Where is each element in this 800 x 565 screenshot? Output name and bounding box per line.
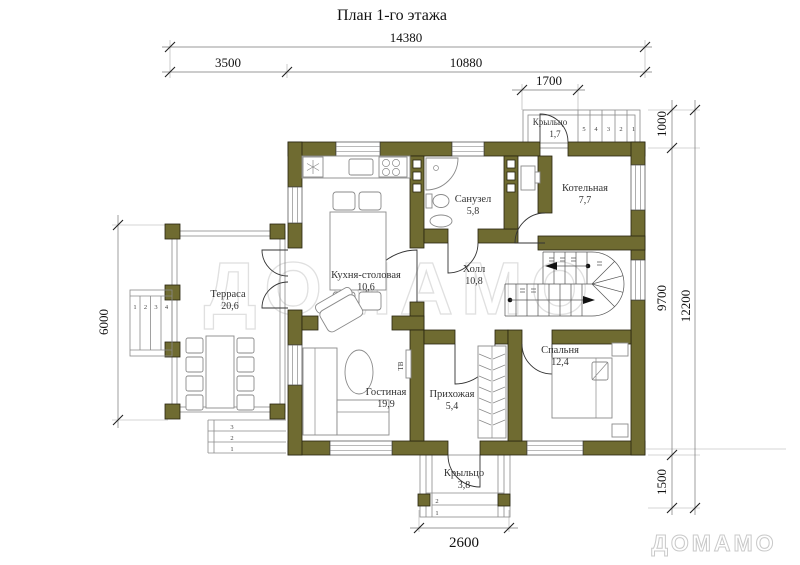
porch-bottom-label: Крыльцо (444, 468, 484, 479)
svg-text:2: 2 (230, 435, 233, 442)
svg-text:2: 2 (435, 498, 438, 505)
svg-text:4: 4 (594, 126, 598, 133)
bathroom-label: Санузел (455, 194, 492, 205)
hall-area: 10,8 (465, 276, 483, 287)
dim-right-house: 9700 (654, 285, 669, 311)
bedroom-label: Спальня (541, 345, 579, 356)
nightstand (612, 424, 628, 437)
toilet (433, 195, 449, 208)
svg-text:1: 1 (230, 446, 233, 453)
svg-text:5: 5 (582, 126, 585, 133)
terrace-dining-set (186, 336, 254, 410)
washbasin (430, 215, 452, 227)
shower (426, 158, 458, 190)
watermark-corner: ДОМАМО (651, 530, 776, 556)
entry-wardrobe (478, 346, 506, 438)
window (288, 187, 302, 223)
svg-text:1: 1 (435, 510, 438, 517)
tv-label: ТВ (397, 361, 405, 370)
window (330, 441, 392, 455)
hall-label: Холл (463, 264, 486, 275)
svg-text:3: 3 (154, 304, 157, 311)
dim-porch-top: 1700 (536, 73, 562, 88)
terrace-area: 20,6 (221, 301, 239, 312)
porch-bottom-area: 3,8 (458, 480, 471, 491)
entry-area: 5,4 (446, 401, 459, 412)
svg-text:3: 3 (230, 424, 233, 431)
dim-right-porch: 1000 (654, 111, 669, 137)
svg-text:1: 1 (133, 304, 136, 311)
window (631, 165, 645, 210)
dim-left-terrace: 6000 (96, 309, 111, 335)
porch-bottom: 2 1 Крыльцо 3,8 (418, 455, 510, 517)
terrace-label: Терраса (210, 289, 246, 300)
page-title: План 1-го этажа (337, 7, 447, 24)
floor-plan-canvas: ДОМАМО ДОМАМО План 1-го этажа 14380 3500… (0, 0, 800, 565)
bathroom-fixtures (426, 158, 458, 227)
dim-top-right: 10880 (450, 55, 483, 70)
svg-text:1: 1 (632, 126, 635, 133)
window (631, 260, 645, 300)
dim-top-left: 3500 (215, 55, 241, 70)
kitchen-area: 10,6 (357, 282, 375, 293)
nightstand (612, 343, 628, 356)
porch-top-area: 1,7 (549, 129, 561, 139)
dim-right-total: 12200 (678, 290, 693, 323)
window (452, 142, 484, 156)
living-label: Гостиная (366, 387, 407, 398)
window (336, 142, 380, 156)
living-area: 19,9 (377, 399, 395, 410)
boiler-label: Котельная (562, 183, 608, 194)
boiler-equipment (521, 166, 540, 190)
terrace-bottom-steps: 3 2 1 (208, 420, 286, 453)
window (288, 345, 302, 385)
svg-text:2: 2 (619, 126, 622, 133)
bathroom-area: 5,8 (467, 206, 480, 217)
bedroom-area: 12,4 (551, 357, 569, 368)
boiler-area: 7,7 (579, 195, 592, 206)
sofa-vertical (303, 348, 337, 435)
dim-top-total: 14380 (390, 30, 423, 45)
dim-right-porch-bottom: 1500 (654, 469, 669, 495)
window (527, 441, 583, 455)
toilet-tank (426, 194, 432, 208)
svg-text:3: 3 (607, 126, 610, 133)
tv (406, 350, 411, 378)
floor-plan-drawing: ДОМАМО ДОМАМО План 1-го этажа 14380 3500… (0, 0, 800, 565)
sink (349, 159, 373, 175)
dim-bottom-porch: 2600 (449, 535, 479, 551)
entry-label: Прихожая (429, 389, 474, 400)
kitchen-label: Кухня-столовая (331, 270, 401, 281)
svg-text:4: 4 (165, 304, 169, 311)
svg-text:2: 2 (144, 304, 147, 311)
